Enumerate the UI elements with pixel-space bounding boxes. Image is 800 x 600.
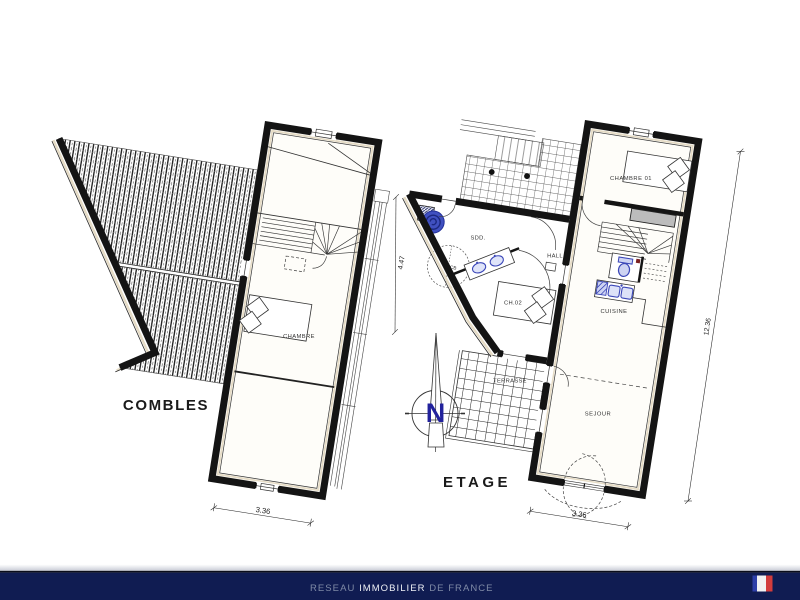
svg-text:RESEAU IMMOBILIER DE FRANCE: RESEAU IMMOBILIER DE FRANCE	[310, 583, 494, 594]
svg-text:COMBLES: COMBLES	[123, 397, 209, 414]
svg-text:HALL: HALL	[547, 254, 563, 260]
svg-text:CHAMBRE: CHAMBRE	[283, 334, 315, 340]
svg-text:CHAMBRE 01: CHAMBRE 01	[610, 176, 652, 182]
svg-text:TERRASSE: TERRASSE	[493, 379, 527, 385]
svg-text:CH.02: CH.02	[504, 301, 522, 307]
svg-text:CUISINE: CUISINE	[600, 309, 627, 315]
svg-text:ETAGE: ETAGE	[443, 474, 511, 491]
svg-text:N: N	[426, 398, 446, 428]
svg-text:SDD.: SDD.	[470, 236, 485, 242]
svg-text:SEJOUR: SEJOUR	[585, 412, 612, 418]
